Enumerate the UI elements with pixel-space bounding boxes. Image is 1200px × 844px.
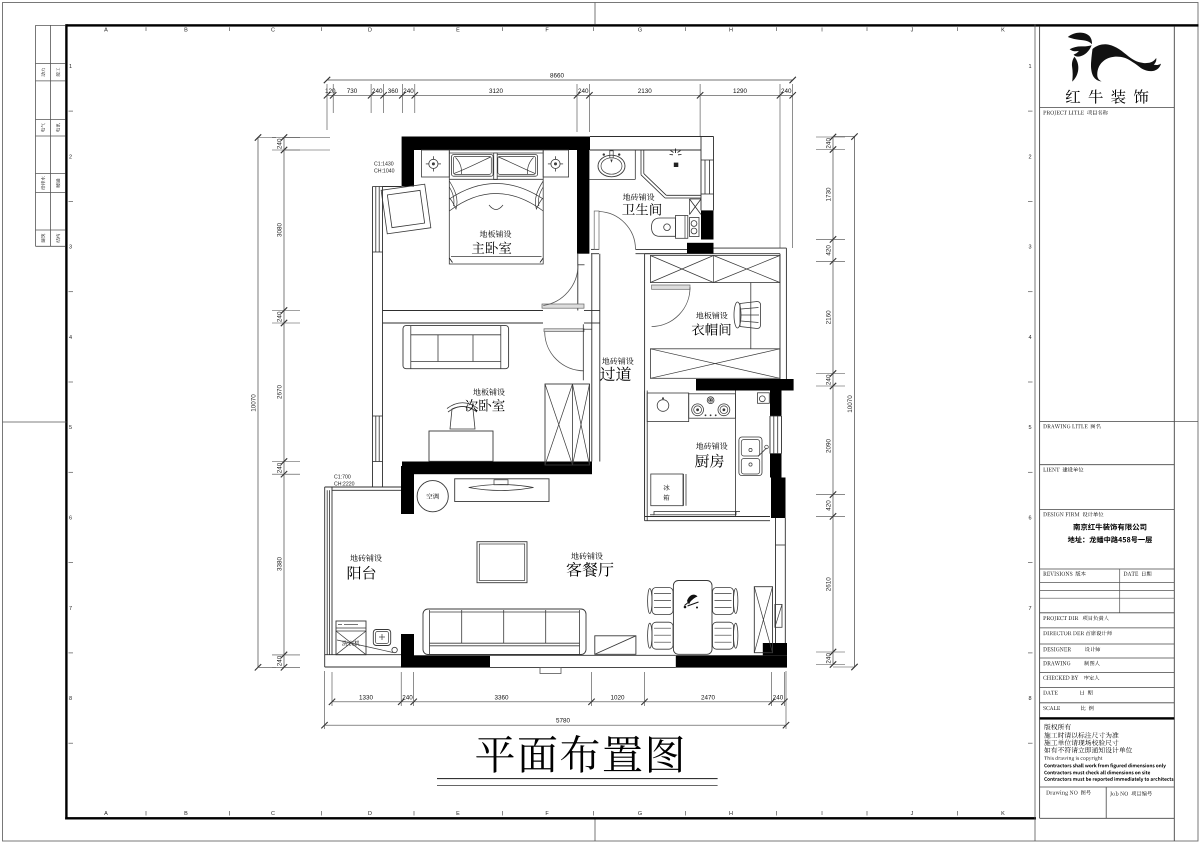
svg-text:240: 240 bbox=[826, 374, 833, 385]
svg-text:4: 4 bbox=[1028, 335, 1031, 341]
svg-text:360: 360 bbox=[388, 88, 399, 95]
svg-text:2: 2 bbox=[69, 154, 72, 160]
svg-text:240: 240 bbox=[781, 88, 792, 95]
svg-text:CH:2220: CH:2220 bbox=[334, 482, 355, 488]
svg-text:C1:700: C1:700 bbox=[334, 475, 351, 481]
svg-text:E: E bbox=[456, 811, 460, 817]
svg-text:8660: 8660 bbox=[550, 73, 565, 80]
svg-text:1730: 1730 bbox=[826, 187, 833, 202]
svg-text:2160: 2160 bbox=[826, 310, 833, 325]
svg-text:240: 240 bbox=[402, 694, 413, 701]
svg-text:K: K bbox=[1001, 811, 1005, 817]
svg-text:C1:1430: C1:1430 bbox=[374, 162, 394, 168]
svg-text:H: H bbox=[729, 811, 733, 817]
svg-text:3360: 3360 bbox=[494, 694, 509, 701]
svg-text:4: 4 bbox=[69, 335, 72, 341]
svg-text:1330: 1330 bbox=[359, 694, 374, 701]
svg-text:2470: 2470 bbox=[701, 694, 716, 701]
svg-text:D: D bbox=[368, 28, 372, 34]
svg-text:240: 240 bbox=[773, 694, 784, 701]
svg-text:J: J bbox=[911, 28, 914, 34]
svg-text:C: C bbox=[271, 28, 275, 34]
svg-text:H: H bbox=[729, 28, 733, 34]
svg-text:240: 240 bbox=[403, 88, 414, 95]
svg-text:E: E bbox=[456, 28, 460, 34]
svg-text:A: A bbox=[104, 28, 108, 34]
svg-text:120: 120 bbox=[325, 88, 336, 95]
svg-text:G: G bbox=[638, 811, 642, 817]
svg-text:10070: 10070 bbox=[847, 395, 854, 413]
svg-text:420: 420 bbox=[826, 500, 833, 511]
svg-text:K: K bbox=[1001, 28, 1005, 34]
svg-text:3380: 3380 bbox=[277, 557, 284, 572]
svg-text:2610: 2610 bbox=[826, 577, 833, 592]
svg-text:2130: 2130 bbox=[638, 88, 653, 95]
svg-text:240: 240 bbox=[826, 653, 833, 664]
svg-text:1020: 1020 bbox=[610, 694, 625, 701]
svg-text:10070: 10070 bbox=[251, 394, 258, 412]
svg-text:5: 5 bbox=[1028, 425, 1031, 431]
svg-text:J: J bbox=[911, 811, 914, 817]
svg-text:240: 240 bbox=[578, 88, 589, 95]
svg-text:5: 5 bbox=[69, 425, 72, 431]
svg-text:240: 240 bbox=[277, 462, 284, 473]
svg-text:6: 6 bbox=[69, 516, 72, 522]
svg-text:2: 2 bbox=[1028, 154, 1031, 160]
svg-text:6: 6 bbox=[1028, 516, 1031, 522]
svg-text:1: 1 bbox=[69, 64, 72, 70]
svg-text:8: 8 bbox=[1028, 696, 1031, 702]
svg-text:420: 420 bbox=[826, 245, 833, 256]
svg-text:3: 3 bbox=[69, 245, 72, 251]
svg-text:730: 730 bbox=[347, 88, 358, 95]
svg-text:1: 1 bbox=[1028, 64, 1031, 70]
svg-text:240: 240 bbox=[277, 655, 284, 666]
svg-text:3: 3 bbox=[1028, 245, 1031, 251]
svg-text:240: 240 bbox=[277, 138, 284, 149]
svg-text:5780: 5780 bbox=[556, 718, 571, 725]
svg-text:1290: 1290 bbox=[733, 88, 748, 95]
svg-text:240: 240 bbox=[277, 311, 284, 322]
svg-text:7: 7 bbox=[69, 606, 72, 612]
svg-text:3120: 3120 bbox=[489, 88, 504, 95]
svg-text:C: C bbox=[271, 811, 275, 817]
svg-text:240: 240 bbox=[372, 88, 383, 95]
svg-text:B: B bbox=[184, 28, 188, 34]
svg-text:7: 7 bbox=[1028, 606, 1031, 612]
svg-text:B: B bbox=[184, 811, 188, 817]
svg-text:3080: 3080 bbox=[277, 223, 284, 238]
svg-text:2090: 2090 bbox=[826, 439, 833, 454]
svg-text:2670: 2670 bbox=[277, 385, 284, 400]
svg-text:CH:1040: CH:1040 bbox=[374, 169, 395, 175]
svg-text:8: 8 bbox=[69, 696, 72, 702]
svg-text:A: A bbox=[104, 811, 108, 817]
svg-text:D: D bbox=[368, 811, 372, 817]
svg-text:G: G bbox=[638, 28, 642, 34]
svg-text:240: 240 bbox=[826, 138, 833, 149]
